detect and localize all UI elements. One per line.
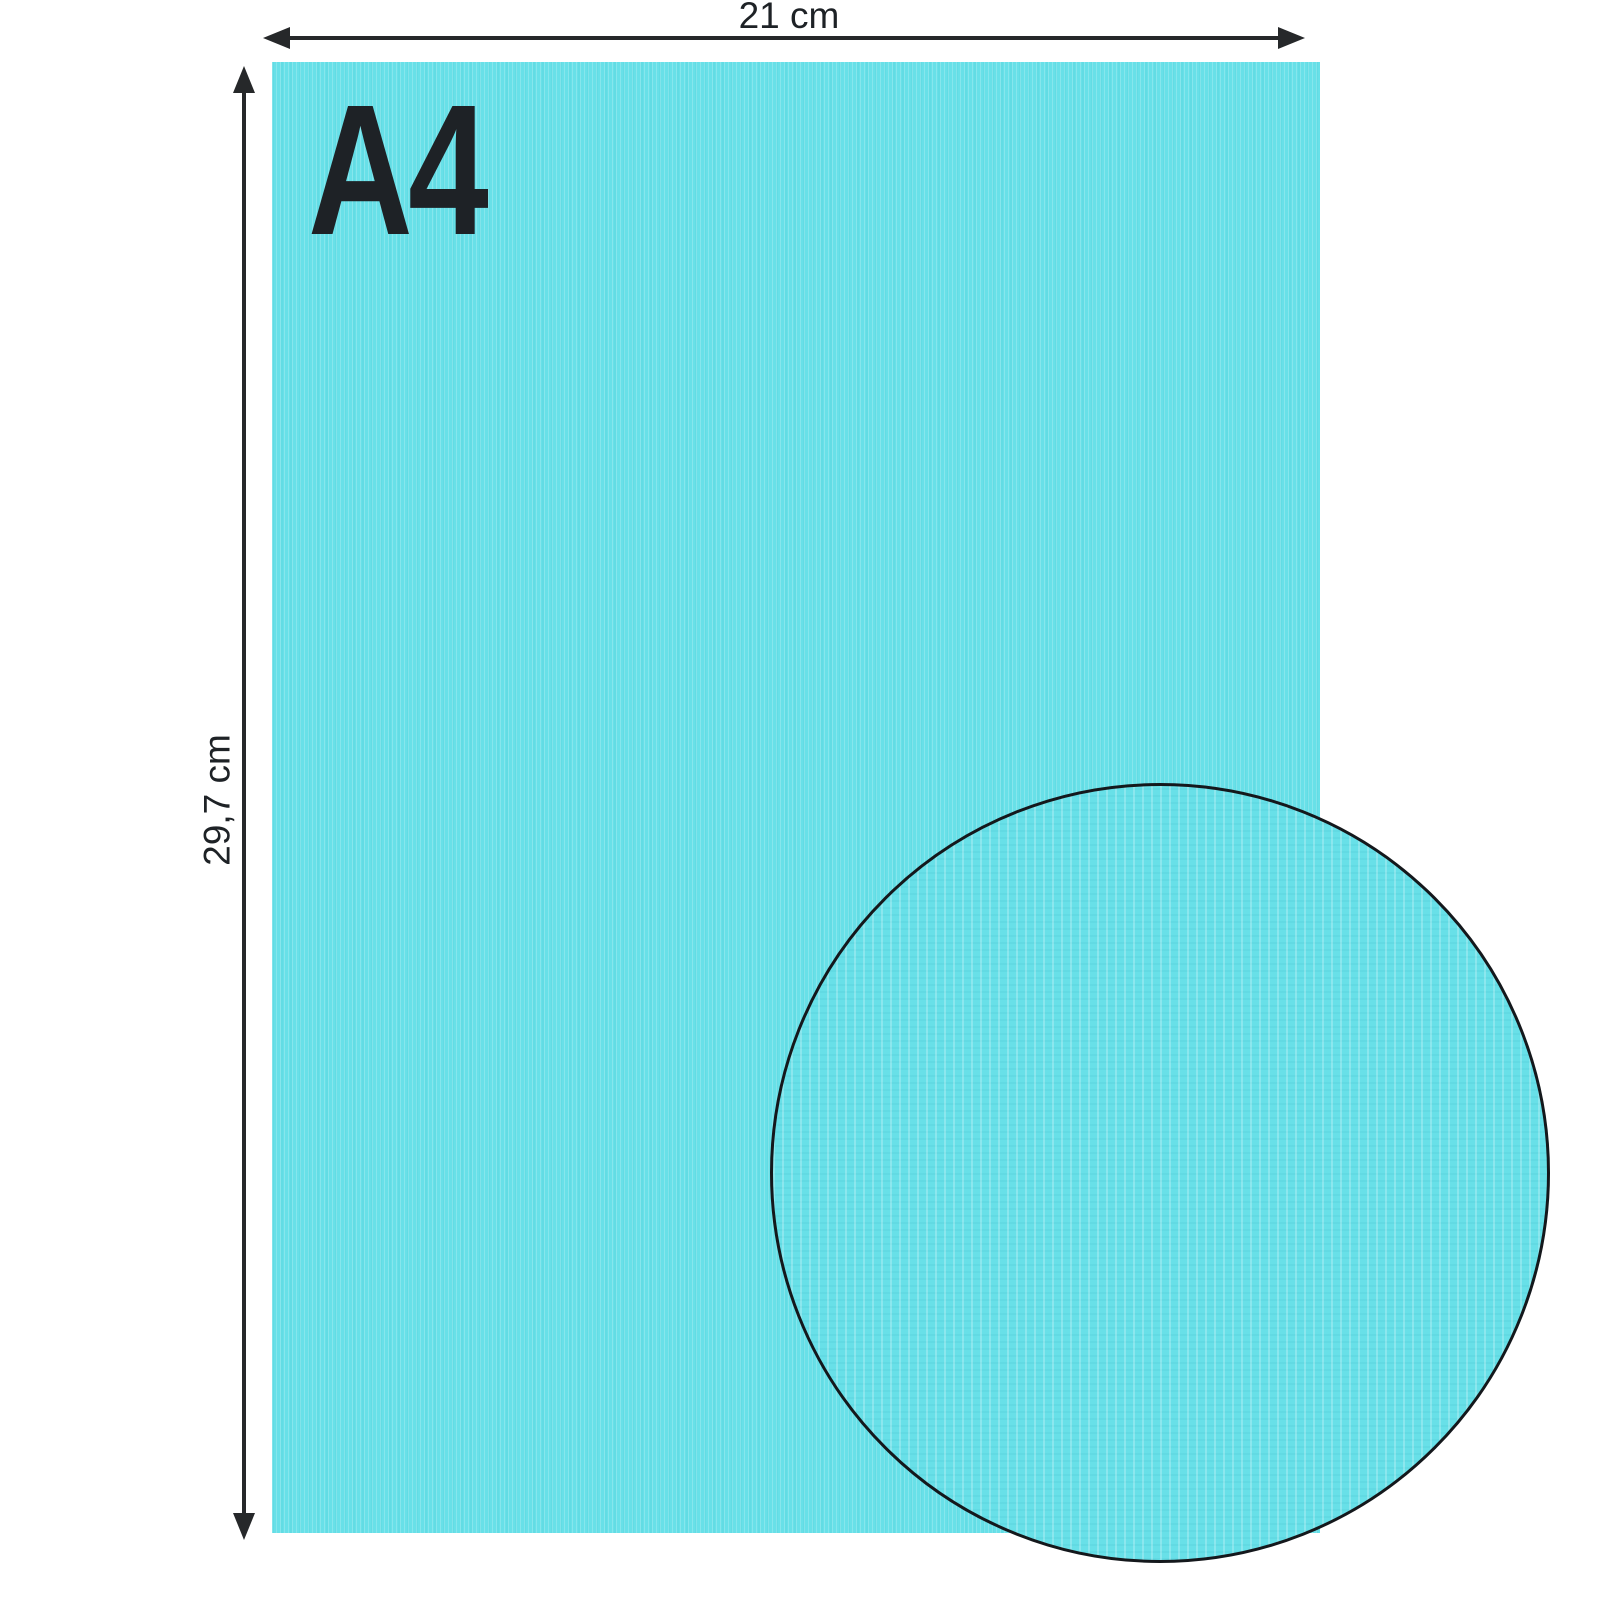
arrowhead-right-icon (1278, 27, 1305, 49)
texture-zoom-circle (770, 783, 1550, 1563)
arrowhead-down-icon (233, 1513, 255, 1540)
height-label: 29,7 cm (199, 734, 236, 866)
width-label: 21 cm (689, 0, 889, 34)
width-arrow-line (278, 36, 1294, 40)
arrowhead-up-icon (233, 66, 255, 93)
height-arrow-line (242, 80, 246, 1524)
arrowhead-left-icon (263, 27, 290, 49)
format-label: A4 (308, 78, 484, 264)
product-diagram: 21 cm 29,7 cm A4 (0, 0, 1600, 1600)
